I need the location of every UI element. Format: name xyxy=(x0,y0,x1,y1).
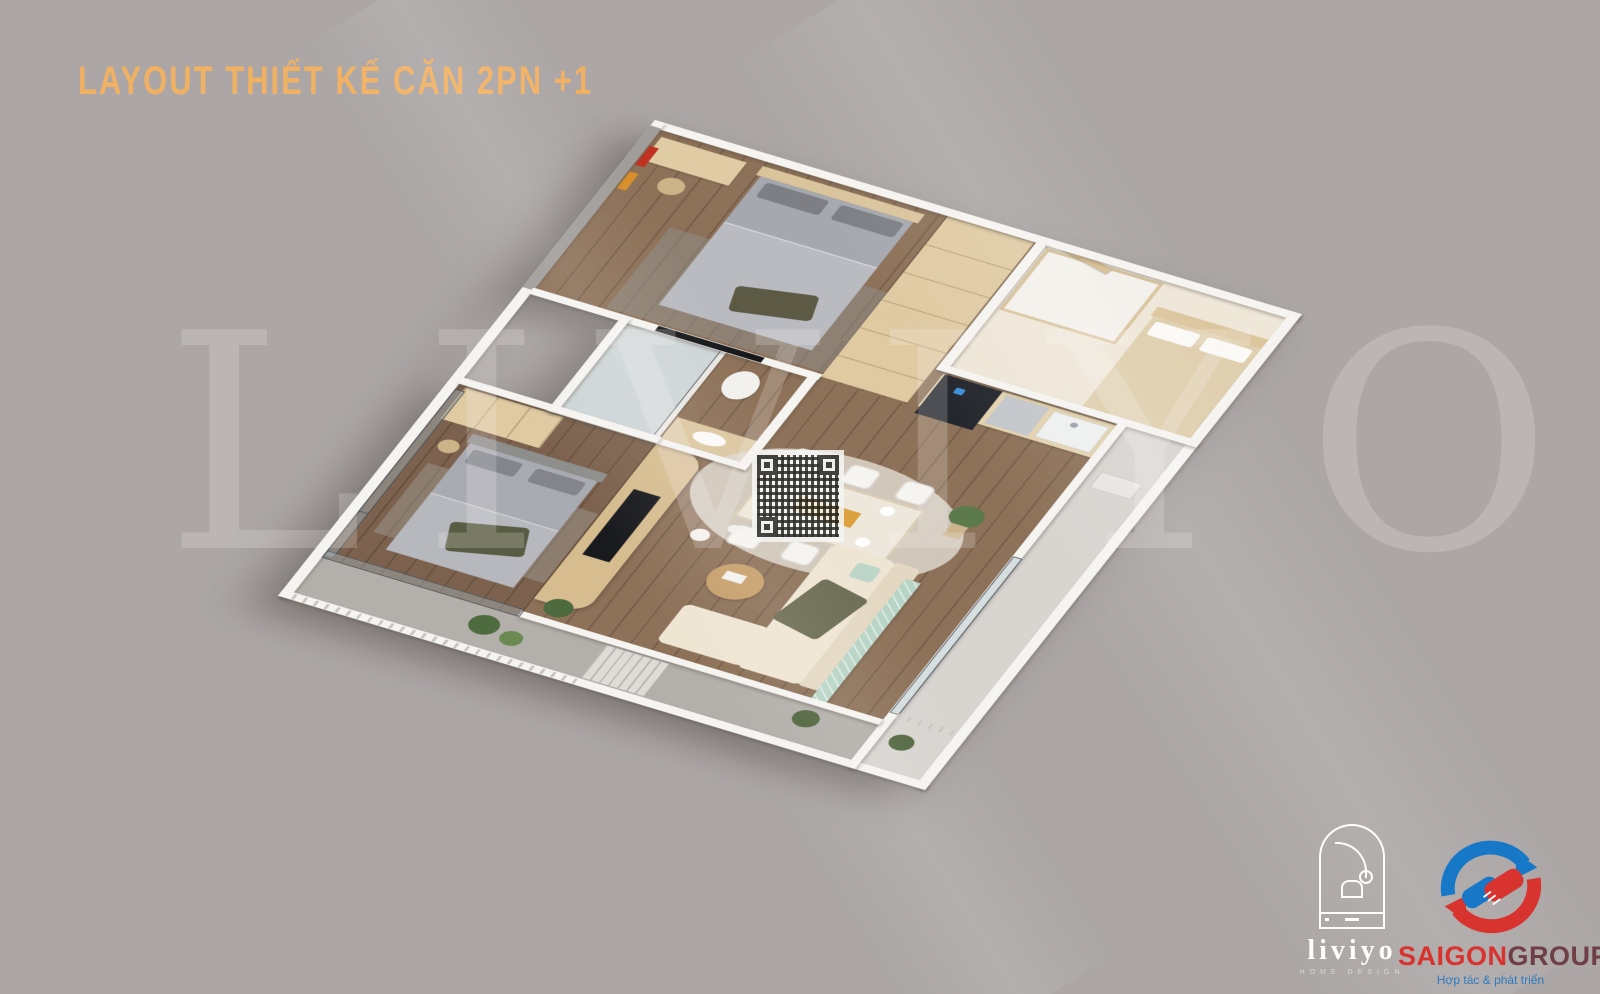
handshake-circle-icon xyxy=(1435,836,1547,936)
liviyo-shelf-icon xyxy=(1319,912,1385,929)
chair-icon xyxy=(1341,880,1363,898)
liviyo-logo: liviyo HOME DESIGN xyxy=(1297,824,1407,976)
qr-finder xyxy=(819,455,839,475)
render-stage: LAYOUT THIẾT KẾ CĂN 2PN +1 xyxy=(0,0,1600,994)
qr-pattern xyxy=(757,455,839,537)
saigongroup-logo: SAIGONGROUP Hợp tác & phát triển xyxy=(1398,836,1583,987)
liviyo-brand-text: liviyo xyxy=(1297,935,1407,967)
saigongroup-tagline: Hợp tác & phát triển xyxy=(1398,973,1583,987)
page-title: LAYOUT THIẾT KẾ CĂN 2PN +1 xyxy=(78,58,593,104)
qr-finder xyxy=(757,517,777,537)
liviyo-caption: HOME DESIGN xyxy=(1297,969,1407,976)
liviyo-arch-icon xyxy=(1319,824,1385,912)
qr-code xyxy=(752,450,844,542)
saigongroup-brand-text: SAIGONGROUP xyxy=(1398,941,1583,972)
qr-finder xyxy=(757,455,777,475)
group-text: GROUP xyxy=(1508,941,1600,971)
saigon-text: SAIGON xyxy=(1398,941,1508,971)
